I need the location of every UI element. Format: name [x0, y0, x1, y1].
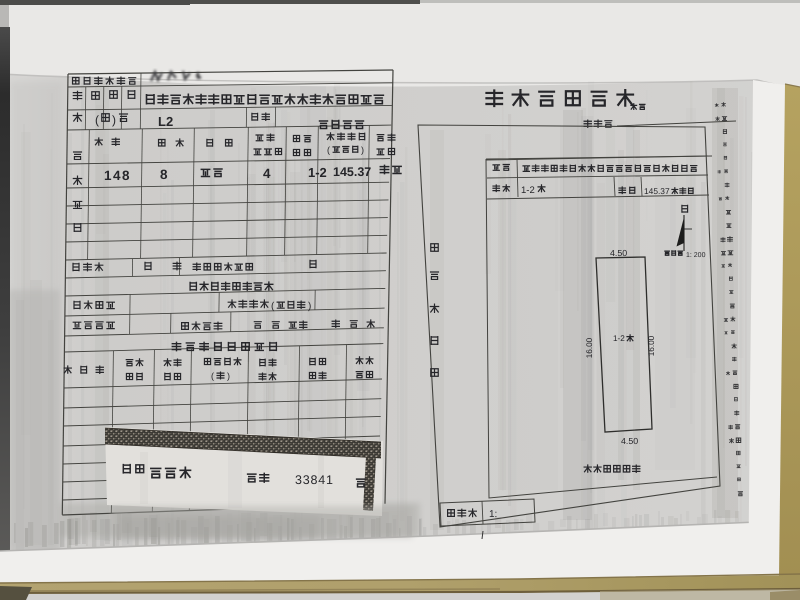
svg-text:145.37: 145.37 [333, 165, 371, 179]
svg-text:): ) [308, 301, 311, 312]
svg-text:16.00: 16.00 [647, 335, 656, 356]
svg-text:16.00: 16.00 [585, 337, 594, 358]
svg-text:1-2: 1-2 [521, 185, 535, 196]
svg-text:4: 4 [263, 166, 271, 181]
svg-text:1-2: 1-2 [308, 165, 327, 180]
svg-text:(: ( [211, 371, 214, 381]
svg-text:148: 148 [104, 168, 131, 183]
svg-text:): ) [112, 113, 116, 127]
svg-text:1:: 1: [489, 509, 497, 520]
svg-text:4.50: 4.50 [610, 248, 627, 258]
svg-text:1-2: 1-2 [613, 334, 625, 343]
svg-text:(: ( [95, 113, 99, 127]
svg-text:L2: L2 [158, 114, 173, 129]
svg-text:1: 200: 1: 200 [686, 252, 706, 259]
svg-text:145.37: 145.37 [644, 186, 670, 196]
svg-text:4.50: 4.50 [621, 436, 638, 446]
svg-text:(: ( [327, 145, 330, 155]
svg-text:8: 8 [160, 167, 168, 182]
svg-text:33841: 33841 [295, 473, 334, 487]
svg-text:): ) [361, 145, 364, 155]
svg-text:): ) [227, 371, 230, 381]
